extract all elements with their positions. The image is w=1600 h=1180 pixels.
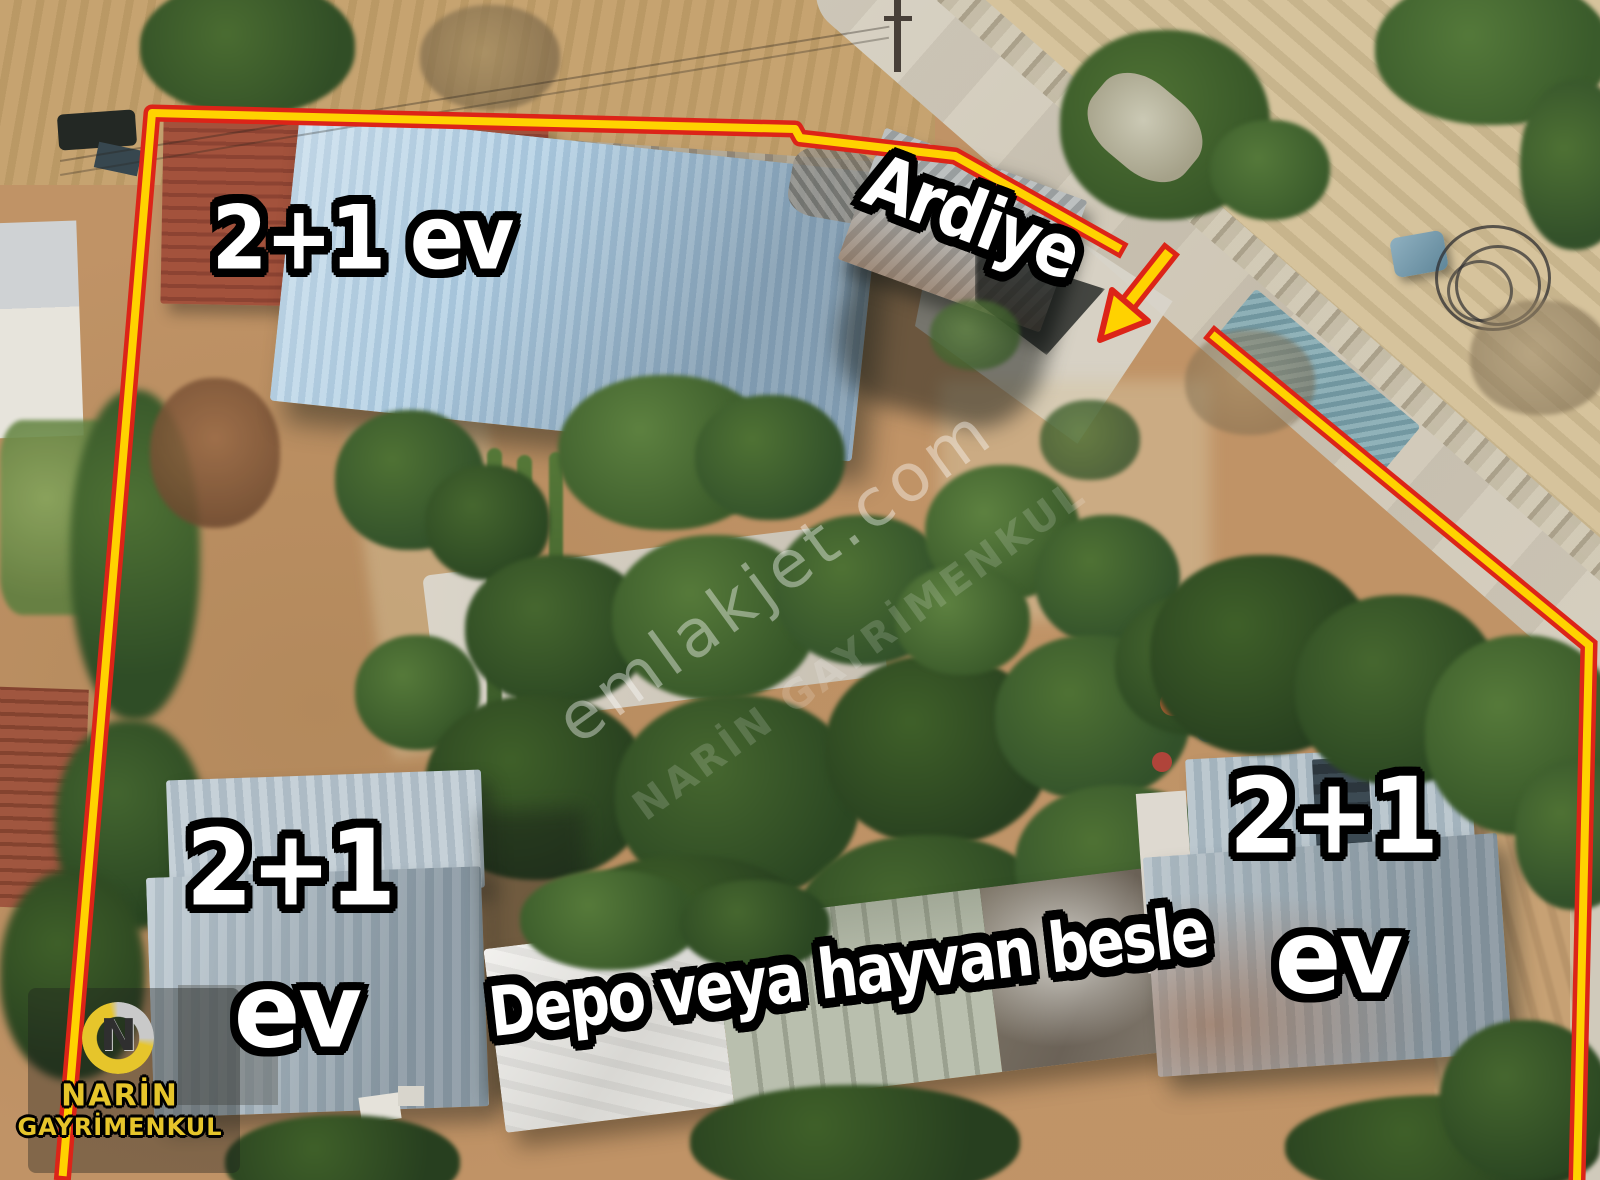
label-bottom-left-house-line1-text: 2+1 (186, 806, 394, 929)
entrance-arrow-shaft (1128, 256, 1166, 304)
label-bottom-left-house-line2-text: ev (234, 952, 360, 1072)
label-right-house-line1-text: 2+1 (1229, 754, 1437, 877)
label-bottom-left-house-line1: 2+12+1 (186, 806, 394, 929)
label-bottom-left-house-line2: evev (234, 952, 360, 1072)
aerial-photo: NARİN GAYRİMENKUL emlakjet.com 2+1 ev2+1… (0, 0, 1600, 1180)
logo-name-line2: GAYRİMENKUL (17, 1113, 222, 1141)
label-top-left-house: 2+1 ev2+1 ev (212, 187, 513, 289)
logo-name-line1: NARİN (61, 1079, 179, 1114)
label-right-house-line1: 2+12+1 (1229, 754, 1437, 877)
logo-monogram-letter: N (100, 1010, 137, 1061)
label-top-left-house-text: 2+1 ev (212, 187, 513, 289)
label-right-house-line2-text: ev (1275, 898, 1401, 1018)
label-right-house-line2: evev (1275, 898, 1401, 1018)
